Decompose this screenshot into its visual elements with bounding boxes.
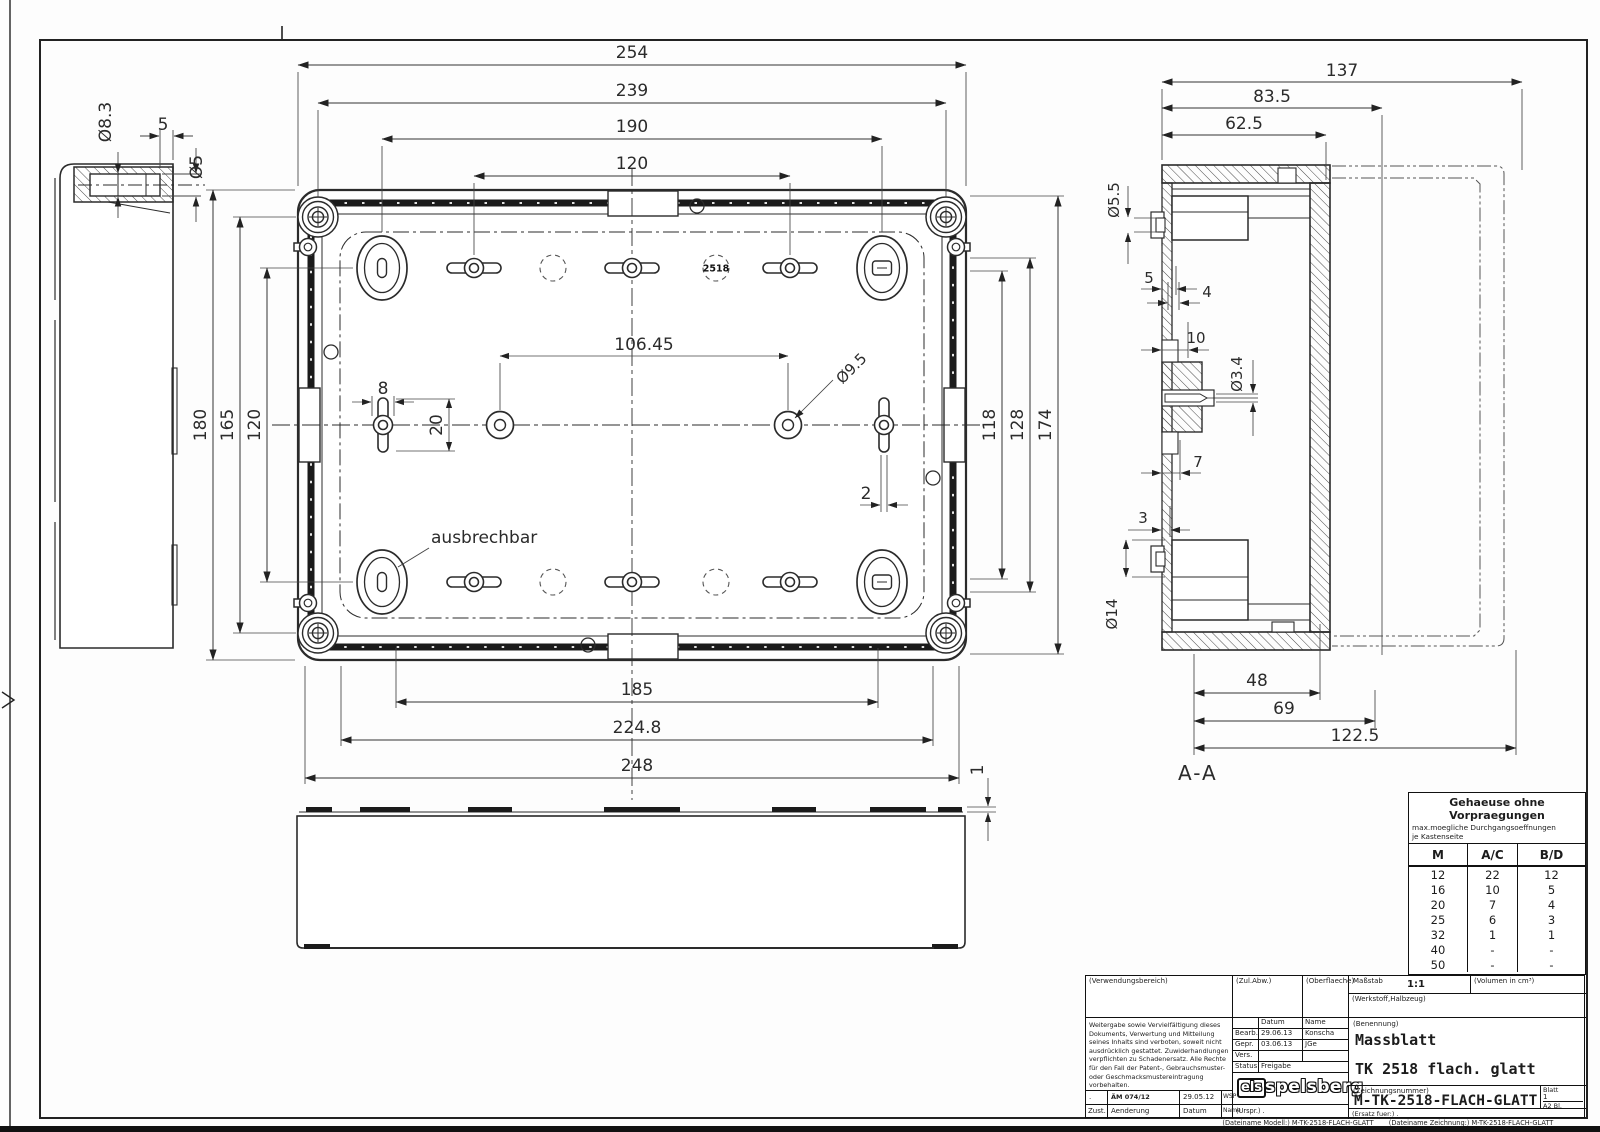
- massstab-label: Maßstab: [1350, 976, 1383, 985]
- dim-2: 2: [861, 484, 872, 504]
- table-row: 16105: [1409, 882, 1585, 897]
- gepr-name-cell: JGe: [1303, 1040, 1349, 1051]
- table-row: 2074: [1409, 897, 1585, 912]
- dim-3-4: Ø3.4: [1228, 356, 1246, 392]
- zul-abw-label: (Zul.Abw.): [1236, 977, 1271, 985]
- cell: 32: [1409, 927, 1467, 942]
- section-top-wall: [1162, 165, 1330, 183]
- oberflaeche-cell: (Oberflaeche): [1303, 976, 1349, 1018]
- zust-cell: Zust.: [1086, 1105, 1108, 1119]
- verwendungsbereich-cell: (Verwendungsbereich): [1086, 976, 1233, 1018]
- gepr-name: JGe: [1305, 1040, 1317, 1048]
- massstab-value: 1:1: [1407, 979, 1425, 990]
- status-value-cell: Freigabe: [1259, 1062, 1349, 1073]
- note-ausbrechbar: ausbrechbar: [431, 528, 537, 548]
- dim-239: 239: [616, 81, 648, 101]
- file-model-label: (Dateiname Modell:) M-TK-2518-FLACH-GLAT…: [1222, 1119, 1373, 1127]
- bearb-datum-cell: 29.06.13: [1259, 1029, 1303, 1040]
- datum-header-cell: Datum: [1259, 1018, 1303, 1029]
- dim-62-5: 62.5: [1225, 114, 1263, 134]
- werkstoff-cell: (Werkstoff,Halbzeug): [1349, 994, 1586, 1018]
- benennung-line2: TK 2518 flach. glatt: [1355, 1060, 1536, 1078]
- spelsberg-logo-icon: els: [1237, 1078, 1266, 1098]
- dim-48: 48: [1246, 671, 1268, 691]
- dim-83-5: 83.5: [1253, 87, 1291, 107]
- dim-174: 174: [1036, 409, 1056, 441]
- dim-254: 254: [616, 43, 648, 63]
- aenderung-cell: Aenderung: [1108, 1105, 1180, 1119]
- file-drawing-label: (Dateiname Zeichnung:) M-TK-2518-FLACH-G…: [1389, 1119, 1554, 1127]
- cell: -: [1517, 942, 1585, 957]
- vers-name-cell: [1303, 1051, 1349, 1062]
- cell: -: [1517, 957, 1585, 972]
- side-dim-bore: Ø8.3: [96, 102, 116, 142]
- cell: 6: [1467, 912, 1517, 927]
- rev-datum: 29.05.12: [1183, 1093, 1214, 1101]
- name-header: Name: [1305, 1018, 1326, 1026]
- section-right-wall: [1310, 183, 1330, 632]
- bottom-view: 1: [297, 765, 996, 949]
- cell: 1: [1517, 927, 1585, 942]
- rev-mark: .: [1089, 1093, 1091, 1101]
- cell: 40: [1409, 942, 1467, 957]
- section-dim-7: 7: [1193, 453, 1203, 471]
- ersatz-label: (Ersatz fuer:) .: [1352, 1110, 1399, 1118]
- logo-cell: els spelsberg: [1233, 1073, 1349, 1105]
- rev-mark-cell: .: [1086, 1091, 1108, 1105]
- dim-128: 128: [1008, 409, 1028, 441]
- col-header-ac: A/C: [1467, 844, 1517, 865]
- dim-120-top: 120: [616, 154, 648, 174]
- dim-190: 190: [616, 117, 648, 137]
- name2-cell: Name: [1222, 1105, 1233, 1119]
- dim-1: 1: [968, 765, 988, 776]
- benennung-label: (Benennung): [1350, 1019, 1399, 1028]
- zeichnungsnummer-value: M-TK-2518-FLACH-GLATT: [1354, 1093, 1537, 1109]
- name-header-cell: Name: [1303, 1018, 1349, 1029]
- vers-label-cell: Vers.: [1233, 1051, 1259, 1062]
- knockout-table-subtitle: max.moegliche Durchgangsoeffnungen je Ka…: [1409, 822, 1585, 844]
- section-label: A-A: [1178, 761, 1218, 785]
- dim-14: Ø14: [1103, 599, 1121, 630]
- urspr-cell: (Urspr.) .: [1233, 1105, 1349, 1119]
- legal-note-cell: Weitergabe sowie Vervielfältigung dieses…: [1086, 1018, 1233, 1091]
- drawing-sheet: Ø8.3 5 Ø5 2518: [0, 0, 1600, 1132]
- gepr-datum-cell: 03.06.13: [1259, 1040, 1303, 1051]
- vers-label: Vers.: [1235, 1051, 1252, 1059]
- table-row: 2563: [1409, 912, 1585, 927]
- bearb-label: Bearb.: [1235, 1029, 1258, 1037]
- cell: 20: [1409, 897, 1467, 912]
- side-view: Ø8.3 5 Ø5: [55, 102, 207, 648]
- werkstoff-label: (Werkstoff,Halbzeug): [1352, 995, 1426, 1003]
- title-block: (Verwendungsbereich) (Zul.Abw.) (Oberfla…: [1085, 975, 1585, 1118]
- rev-name-cell: WSP: [1222, 1091, 1233, 1105]
- bearb-label-cell: Bearb.: [1233, 1029, 1259, 1040]
- dim-165: 165: [218, 409, 238, 441]
- type-badge-label: 2518: [703, 264, 730, 275]
- bearb-name: Konscha: [1305, 1029, 1334, 1037]
- status-label-cell: Status: [1233, 1062, 1259, 1073]
- center-mark-left: [2, 692, 14, 708]
- volumen-label: (Volumen in cm³): [1474, 977, 1534, 985]
- status-label: Status: [1235, 1062, 1257, 1070]
- bearb-datum: 29.06.13: [1261, 1029, 1292, 1037]
- side-view-outline: [60, 164, 173, 648]
- status-value: Freigabe: [1261, 1062, 1291, 1070]
- dim-120-left: 120: [245, 409, 265, 441]
- verwendungsbereich-label: (Verwendungsbereich): [1089, 977, 1168, 985]
- dim-5-5: Ø5.5: [1105, 182, 1123, 218]
- cell: 22: [1467, 867, 1517, 882]
- staff-corner-cell: [1233, 1018, 1259, 1029]
- edge-notch-top: [608, 191, 678, 216]
- cell: 12: [1517, 867, 1585, 882]
- datum-label: Datum: [1183, 1107, 1207, 1115]
- bearb-name-cell: Konscha: [1303, 1029, 1349, 1040]
- cell: 10: [1467, 882, 1517, 897]
- dim-180: 180: [191, 409, 211, 441]
- cell: 16: [1409, 882, 1467, 897]
- volumen-cell: (Volumen in cm³): [1471, 976, 1586, 994]
- section-bottom-boss: [1151, 540, 1310, 620]
- dim-122-5: 122.5: [1331, 726, 1380, 746]
- col-header-m: M: [1409, 844, 1467, 865]
- massstab-cell: Maßstab 1:1: [1349, 976, 1471, 994]
- table-row: 122212: [1409, 867, 1585, 882]
- section-top-boss: [1151, 196, 1310, 240]
- cell: -: [1467, 957, 1517, 972]
- dim-69: 69: [1273, 699, 1295, 719]
- cell: 5: [1517, 882, 1585, 897]
- blatt-cell: Blatt 1 A2 Bl.: [1541, 1086, 1586, 1109]
- cell: 1: [1467, 927, 1517, 942]
- rev-datum-cell: 29.05.12: [1180, 1091, 1222, 1105]
- cell: 25: [1409, 912, 1467, 927]
- section-dim-3: 3: [1138, 509, 1148, 527]
- table-row: 50--: [1409, 957, 1585, 972]
- section-dim-10: 10: [1186, 329, 1205, 347]
- section-bottom-wall: [1162, 632, 1330, 650]
- col-header-bd: B/D: [1517, 844, 1585, 865]
- top-view: 2518: [191, 43, 1064, 800]
- name-label: Name: [1223, 1107, 1241, 1114]
- dim-8: 8: [378, 379, 389, 399]
- legal-note: Weitergabe sowie Vervielfältigung dieses…: [1089, 1021, 1229, 1089]
- side-dim-offset: 5: [158, 115, 169, 135]
- cell: 7: [1467, 897, 1517, 912]
- side-screw-bore: [90, 174, 160, 196]
- ersatz-cell: (Ersatz fuer:) .: [1349, 1109, 1586, 1119]
- table-row: 40--: [1409, 942, 1585, 957]
- cell: 4: [1517, 897, 1585, 912]
- rev-aem: ÄM 074/12: [1111, 1093, 1150, 1101]
- oberflaeche-label: (Oberflaeche): [1306, 977, 1354, 985]
- dim-185: 185: [621, 680, 653, 700]
- table-row: 3211: [1409, 927, 1585, 942]
- bottom-view-outline: [297, 816, 965, 948]
- knockout-table-title: Gehaeuse ohne Vorpraegungen: [1409, 793, 1585, 822]
- phantom-cover: [1332, 166, 1504, 646]
- dim-248: 248: [621, 756, 653, 776]
- gepr-label: Gepr.: [1235, 1040, 1254, 1048]
- dim-118: 118: [980, 409, 1000, 441]
- aenderung-label: Aenderung: [1111, 1107, 1149, 1115]
- zul-abw-cell: (Zul.Abw.): [1233, 976, 1303, 1018]
- section-dim-5: 5: [1144, 269, 1154, 287]
- cell: -: [1467, 942, 1517, 957]
- datum-header: Datum: [1261, 1018, 1285, 1026]
- rev-name: WSP: [1223, 1093, 1236, 1100]
- benennung-line1: Massblatt: [1355, 1031, 1436, 1049]
- dim-20: 20: [427, 414, 447, 436]
- datum2-cell: Datum: [1180, 1105, 1222, 1119]
- knockout-table-header: M A/C B/D: [1409, 844, 1585, 867]
- cell: 50: [1409, 957, 1467, 972]
- benennung-cell: (Benennung) Massblatt TK 2518 flach. gla…: [1349, 1018, 1586, 1086]
- blatt-value: 1: [1543, 1093, 1547, 1101]
- dim-137: 137: [1326, 61, 1358, 81]
- section-dim-4: 4: [1202, 283, 1212, 301]
- cell: 3: [1517, 912, 1585, 927]
- section-view: 137 83.5 62.5 Ø5.5 5 4 10 Ø3.4 7 3 Ø14 4…: [1103, 61, 1522, 785]
- cell: 12: [1409, 867, 1467, 882]
- drawing-canvas: Ø8.3 5 Ø5 2518: [0, 0, 1600, 1132]
- gepr-label-cell: Gepr.: [1233, 1040, 1259, 1051]
- zust-label: Zust.: [1088, 1107, 1106, 1115]
- zeichnungsnummer-cell: (Zeichnungsnummer) M-TK-2518-FLACH-GLATT: [1349, 1086, 1541, 1109]
- edge-notch-bottom: [608, 634, 678, 659]
- dim-224-8: 224.8: [613, 718, 662, 738]
- gepr-datum: 03.06.13: [1261, 1040, 1292, 1048]
- vers-datum-cell: [1259, 1051, 1303, 1062]
- lid-latch: [1278, 168, 1296, 183]
- dim-106-45: 106.45: [614, 335, 673, 355]
- side-dim-inner: Ø5: [187, 155, 207, 179]
- knockout-table: Gehaeuse ohne Vorpraegungen max.moeglich…: [1408, 792, 1586, 975]
- rev-aem-cell: ÄM 074/12: [1108, 1091, 1180, 1105]
